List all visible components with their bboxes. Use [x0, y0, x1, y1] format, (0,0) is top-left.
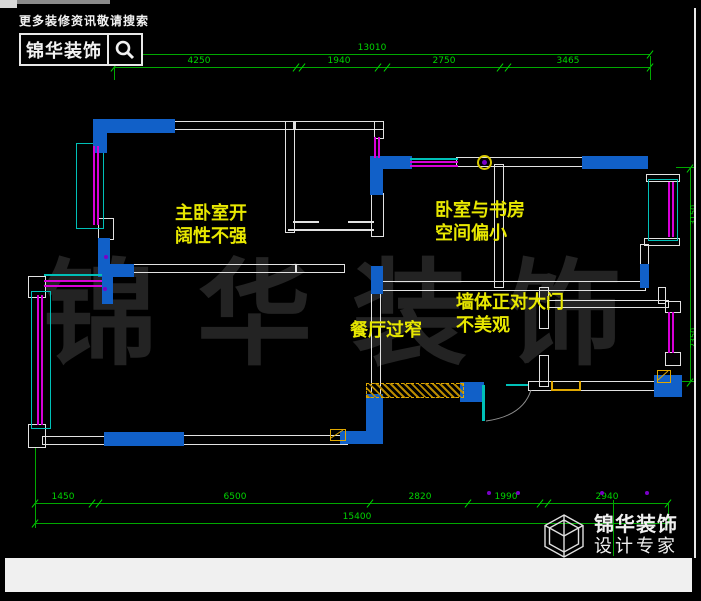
wall-segment: [371, 292, 381, 396]
dimension-line-bottom-chain: [35, 503, 668, 504]
node-dot: [104, 255, 108, 259]
blue-wall: [340, 431, 383, 444]
window-glazing: [97, 146, 99, 225]
blue-wall: [93, 119, 175, 133]
blue-wall: [98, 238, 110, 266]
blue-wall: [371, 266, 383, 294]
hatched-wall: [366, 383, 464, 398]
wall-segment: [528, 381, 660, 391]
node-dot: [600, 491, 604, 495]
dimension-label: 2940: [596, 493, 619, 502]
annotation-master-bedroom: 主卧室开 阔性不强: [175, 202, 247, 248]
sliding-door-line: [348, 221, 374, 223]
dimension-label: 1990: [495, 493, 518, 502]
dimension-label: 1450: [52, 493, 75, 502]
dimension-label: 3465: [557, 57, 580, 66]
node-dot: [516, 491, 520, 495]
dimension-tick: [687, 378, 694, 386]
dimension-label: 4250: [188, 57, 211, 66]
window-frame-line: [44, 274, 102, 276]
wall-segment: [380, 281, 646, 291]
door-leaf: [482, 385, 485, 421]
bay-window-frame: [76, 143, 104, 229]
window-glazing: [41, 295, 43, 425]
dimension-extension-line: [35, 448, 36, 528]
dimension-stub: [676, 167, 696, 168]
window-glazing: [37, 295, 39, 425]
right-edge-line: [694, 8, 696, 558]
window-glazing: [44, 285, 102, 287]
window-glazing: [668, 182, 670, 237]
window-glazing: [93, 146, 95, 225]
footer-tagline-label: 设计专家: [594, 536, 678, 558]
dimension-extension-line: [650, 56, 651, 80]
window-glazing: [410, 165, 458, 167]
corner-artifact: [0, 0, 17, 8]
header-slogan: 更多装修资讯敬请搜索: [19, 12, 149, 29]
dimension-label: 15400: [343, 513, 372, 522]
footer-brand-label: 锦华装饰: [594, 512, 678, 536]
header-brand-box: 锦华装饰: [19, 33, 143, 66]
column-symbol: [477, 155, 492, 170]
blue-wall: [370, 156, 383, 195]
annotation-wall-door: 墙体正对大门 不美观: [456, 291, 564, 337]
annotation-dining: 餐厅过窄: [350, 319, 422, 342]
dimension-line-top-total: [135, 54, 650, 55]
dimension-label: 2750: [433, 57, 456, 66]
footer-logo: 锦华装饰 设计专家: [540, 512, 690, 562]
wall-segment: [547, 300, 669, 308]
sliding-door-line: [293, 221, 319, 223]
wall-segment: [295, 264, 345, 273]
window-glazing: [374, 137, 376, 158]
bottom-white-band: [5, 558, 692, 592]
blue-wall: [104, 432, 184, 446]
cube-logo-icon: [540, 512, 588, 560]
wall-segment: [293, 121, 384, 130]
wall-segment: [182, 435, 348, 445]
wall-segment: [173, 121, 296, 130]
blue-wall: [98, 264, 134, 277]
dimension-label: 6500: [224, 493, 247, 502]
wall-segment: [42, 436, 108, 445]
blue-wall: [582, 156, 648, 169]
wall-segment: [285, 121, 295, 233]
blue-wall: [640, 264, 649, 288]
door-threshold: [506, 384, 528, 386]
wall-segment: [132, 264, 297, 273]
floor-plan-image: 锦华装饰 更多装修资讯敬请搜索 锦华装饰: [0, 0, 701, 601]
window-glazing: [410, 161, 458, 163]
dimension-label: 13010: [358, 44, 387, 53]
window-glazing: [668, 312, 670, 353]
sliding-door-line: [288, 229, 374, 231]
wall-segment: [456, 157, 586, 167]
header-brand-label: 锦华装饰: [21, 37, 107, 63]
node-dot: [103, 287, 107, 291]
step-symbol: [551, 381, 581, 391]
window-frame-line: [410, 158, 458, 160]
window-glazing: [378, 137, 380, 158]
window-glazing: [44, 280, 102, 282]
window-glazing: [672, 312, 674, 353]
wall-cap: [665, 352, 681, 366]
node-dot: [645, 491, 649, 495]
window-glazing: [672, 182, 674, 237]
dimension-label: 2820: [409, 493, 432, 502]
annotation-bedroom-study: 卧室与书房 空间偏小: [435, 199, 525, 245]
blue-wall: [93, 133, 107, 153]
dimension-line-right-vertical: [690, 168, 691, 382]
dimension-label: 1940: [328, 57, 351, 66]
search-icon: [107, 35, 141, 64]
node-dot: [487, 491, 491, 495]
dimension-line-top-chain: [114, 67, 650, 68]
symbol-box: [657, 370, 671, 383]
symbol-box: [330, 429, 346, 441]
